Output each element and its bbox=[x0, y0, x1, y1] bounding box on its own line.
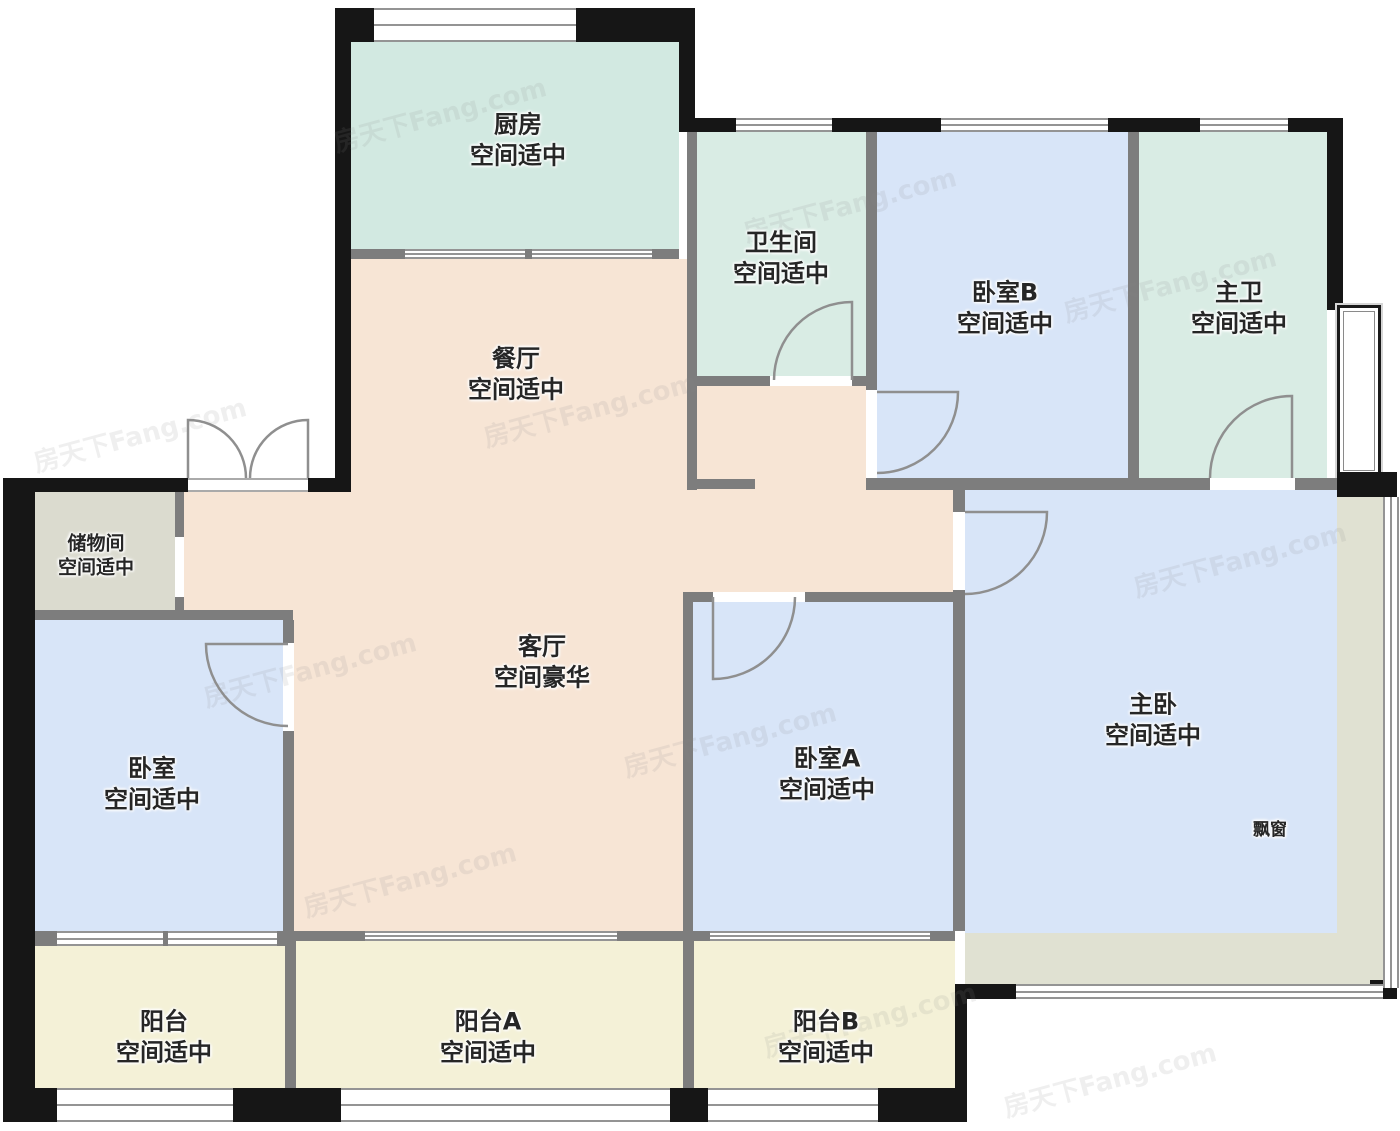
room-note: 空间适中 bbox=[440, 1037, 536, 1068]
room-name: 阳台 bbox=[116, 1006, 212, 1037]
wall-entry-right bbox=[308, 478, 351, 492]
bathroom-north-window bbox=[736, 118, 832, 132]
entrance-threshold bbox=[188, 478, 308, 492]
living-balcony-door-2 bbox=[490, 931, 617, 941]
bedroom-balcony-window-1 bbox=[57, 931, 163, 946]
room-name: 阳台B bbox=[778, 1006, 874, 1037]
wall-kitchen-bottom-1 bbox=[351, 249, 405, 259]
room-name: 飘窗 bbox=[1253, 820, 1287, 842]
wall-bathroom-left bbox=[687, 132, 697, 490]
wall-north-2 bbox=[832, 118, 941, 132]
wall-bedrooma-balcony-2 bbox=[930, 931, 955, 941]
wall-bathroom-right bbox=[866, 132, 877, 390]
room-bathroom-label: 卫生间 空间适中 bbox=[733, 227, 829, 288]
wall-living-balcony-1 bbox=[296, 931, 365, 941]
room-storage-label: 储物间 空间适中 bbox=[58, 532, 134, 581]
room-name: 卧室B bbox=[957, 277, 1053, 308]
wall-hall-stub bbox=[687, 479, 755, 489]
balcony-south-window bbox=[57, 1088, 233, 1122]
bedrooma-balcony-window-2 bbox=[830, 931, 930, 941]
room-kitchen-label: 厨房 空间适中 bbox=[470, 109, 566, 170]
room-name: 主卧 bbox=[1105, 689, 1201, 720]
room-note: 空间适中 bbox=[104, 784, 200, 815]
room-living-sliver bbox=[184, 592, 293, 611]
wall-master-left-lower bbox=[953, 590, 965, 931]
wall-bathroom-bottom-1 bbox=[697, 376, 770, 386]
room-bedroom-a-label: 卧室A 空间适中 bbox=[779, 743, 875, 804]
room-note: 空间豪华 bbox=[494, 662, 590, 693]
room-note: 空间适中 bbox=[58, 556, 134, 580]
floor-plan: 房天下Fang.com 房天下Fang.com 房天下Fang.com 房天下F… bbox=[0, 0, 1400, 1131]
wall-bedroomb-masterbath-divider bbox=[1128, 132, 1139, 478]
balcony-a-south-window bbox=[341, 1088, 670, 1122]
wall-bedroom-a-left bbox=[683, 602, 693, 931]
room-name: 卧室 bbox=[104, 753, 200, 784]
wall-master-bath-right bbox=[1327, 118, 1343, 310]
living-balcony-door-1 bbox=[365, 931, 490, 941]
kitchen-pass-window-2 bbox=[532, 249, 652, 259]
wall-storage-bottom bbox=[35, 610, 293, 620]
bathroom-door-opening bbox=[770, 376, 852, 386]
storage-door-opening bbox=[175, 537, 184, 597]
room-master-label: 主卧 空间适中 bbox=[1105, 689, 1201, 750]
watermark: 房天下Fang.com bbox=[29, 387, 250, 479]
watermark: 房天下Fang.com bbox=[999, 1032, 1220, 1124]
room-balcony-label: 阳台 空间适中 bbox=[116, 1006, 212, 1067]
wall-bedroom-a-top-1 bbox=[683, 592, 713, 602]
wall-balcony-b-right bbox=[955, 984, 967, 1122]
wall-northeast-corner bbox=[1337, 472, 1397, 497]
room-note: 空间适中 bbox=[733, 258, 829, 289]
room-dining-label: 餐厅 空间适中 bbox=[468, 343, 564, 404]
room-name: 卫生间 bbox=[733, 227, 829, 258]
wall-entry-left bbox=[3, 478, 188, 492]
wall-south-1 bbox=[35, 1088, 57, 1122]
wall-balcony-divider-1 bbox=[285, 941, 296, 1088]
bedroom-door-opening bbox=[283, 643, 294, 731]
bedroom-b-door-opening bbox=[866, 390, 877, 478]
room-bedroom-label: 卧室 空间适中 bbox=[104, 753, 200, 814]
room-note: 空间适中 bbox=[778, 1037, 874, 1068]
bay-window-south-glazing bbox=[1016, 984, 1383, 999]
balcony-b-south-window bbox=[708, 1088, 878, 1122]
room-living-label: 客厅 空间豪华 bbox=[494, 631, 590, 692]
master-bath-window-box bbox=[1337, 305, 1381, 477]
bedrooma-balcony-window-1 bbox=[710, 931, 830, 941]
wall-kitchen-bottom-2 bbox=[525, 249, 532, 259]
room-bedroom-b-label: 卧室B 空间适中 bbox=[957, 277, 1053, 338]
wall-north-1 bbox=[679, 118, 736, 132]
room-living-strip bbox=[184, 490, 955, 592]
entrance-double-door-left bbox=[188, 420, 246, 478]
wall-bedroom-balcony-1 bbox=[35, 931, 57, 946]
room-name: 客厅 bbox=[494, 631, 590, 662]
wall-south-2 bbox=[233, 1088, 341, 1122]
room-name: 卧室A bbox=[779, 743, 875, 774]
room-note: 空间适中 bbox=[470, 140, 566, 171]
bay-window-strip-bottom bbox=[965, 933, 1383, 984]
wall-master-top-1 bbox=[866, 478, 1213, 490]
wall-storage-right-1 bbox=[175, 492, 184, 537]
entrance-double-door-right bbox=[250, 420, 308, 478]
wall-balcony-divider-2 bbox=[683, 941, 694, 1088]
wall-north-3 bbox=[1108, 118, 1200, 132]
room-balcony-a-label: 阳台A 空间适中 bbox=[440, 1006, 536, 1067]
wall-master-left-upper bbox=[953, 490, 965, 512]
room-name: 餐厅 bbox=[468, 343, 564, 374]
wall-kitchen-bottom-3 bbox=[652, 249, 679, 259]
wall-living-balcony-2 bbox=[617, 931, 694, 941]
wall-west-outer bbox=[3, 478, 35, 1122]
wall-south-3 bbox=[670, 1088, 708, 1122]
room-hall-area bbox=[697, 386, 866, 490]
wall-bedrooma-balcony-1 bbox=[694, 931, 710, 941]
wall-master-top-2 bbox=[1295, 478, 1337, 490]
bay-window-east-glazing bbox=[1383, 497, 1399, 988]
room-note: 空间适中 bbox=[779, 774, 875, 805]
room-living-area bbox=[293, 592, 683, 931]
room-name: 储物间 bbox=[58, 532, 134, 556]
master-bath-door-opening bbox=[1210, 478, 1295, 490]
wall-bathroom-bottom-2 bbox=[852, 376, 866, 386]
wall-bedroom-right-1 bbox=[283, 620, 294, 643]
room-name: 厨房 bbox=[470, 109, 566, 140]
bedroom-b-north-window bbox=[941, 118, 1108, 132]
wall-kitchen-top-right bbox=[576, 8, 695, 42]
room-note: 空间适中 bbox=[1105, 720, 1201, 751]
bedroom-a-door-opening bbox=[713, 592, 805, 602]
master-door-opening bbox=[953, 512, 965, 590]
room-name: 阳台A bbox=[440, 1006, 536, 1037]
wall-kitchen-right bbox=[679, 8, 695, 132]
room-note: 空间适中 bbox=[1191, 308, 1287, 339]
room-name: 主卫 bbox=[1191, 277, 1287, 308]
room-note: 空间适中 bbox=[116, 1037, 212, 1068]
room-master-bath-label: 主卫 空间适中 bbox=[1191, 277, 1287, 338]
bay-window-label: 飘窗 bbox=[1253, 820, 1287, 842]
kitchen-pass-window-1 bbox=[405, 249, 525, 259]
bay-window-strip-right bbox=[1337, 497, 1383, 984]
wall-kitchen-left bbox=[335, 8, 351, 492]
bedroom-balcony-window-2 bbox=[168, 931, 277, 946]
wall-bedroom-a-top-2 bbox=[805, 592, 955, 602]
room-note: 空间适中 bbox=[957, 308, 1053, 339]
room-note: 空间适中 bbox=[468, 374, 564, 405]
master-bath-north-window bbox=[1200, 118, 1288, 132]
room-balcony-b-label: 阳台B 空间适中 bbox=[778, 1006, 874, 1067]
wall-bedroom-right-2 bbox=[283, 731, 294, 931]
wall-master-south-stub bbox=[962, 984, 1016, 999]
wall-south-4 bbox=[878, 1088, 967, 1122]
kitchen-top-window bbox=[374, 8, 576, 42]
